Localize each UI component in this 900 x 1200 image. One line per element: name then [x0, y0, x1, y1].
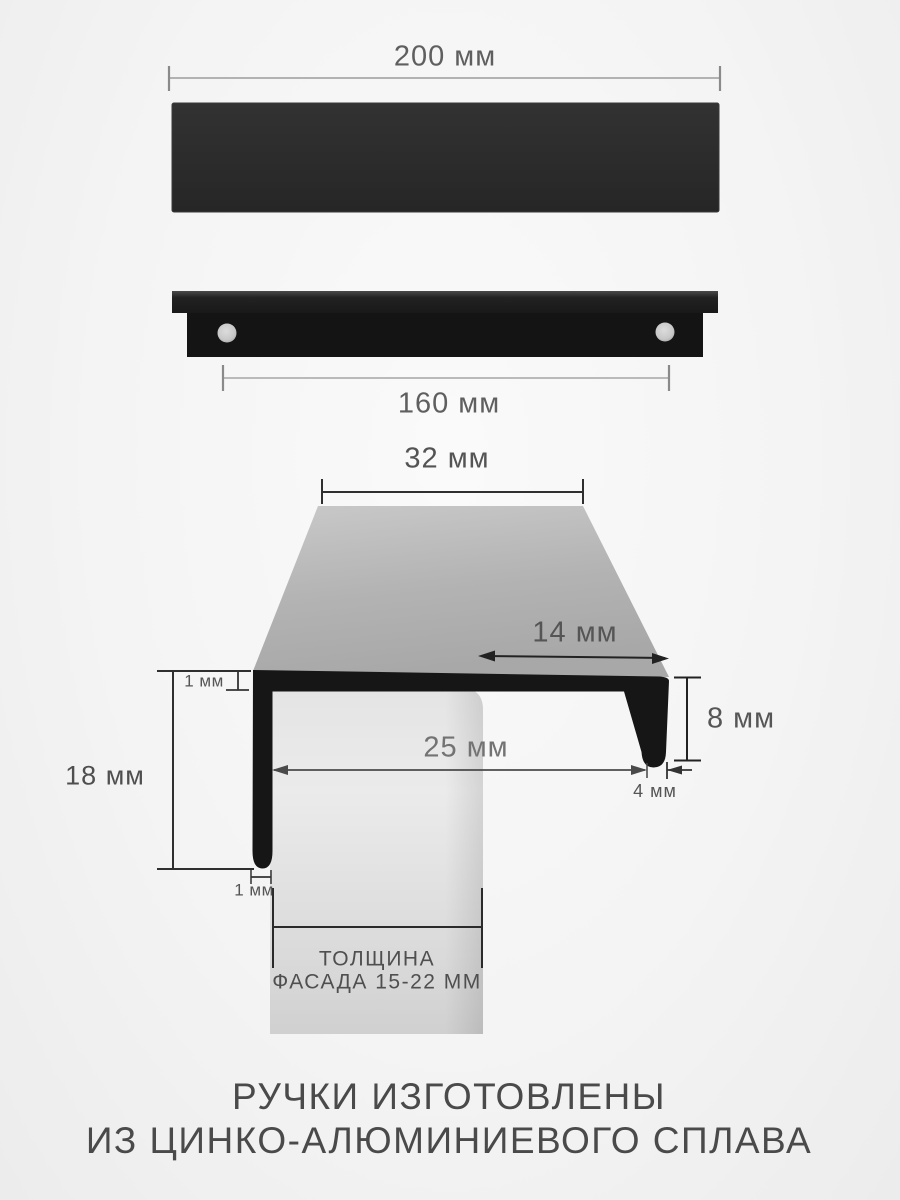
front-view-lip [172, 291, 718, 313]
caption-line2: ИЗ ЦИНКО-АЛЮМИНИЕВОГО СПЛАВА [86, 1120, 812, 1162]
dim-label-200mm: 200 мм [394, 43, 496, 72]
section-top-face [253, 506, 669, 677]
dim-label-1mm-bottom: 1 мм [234, 882, 274, 899]
top-view-handle-bar [172, 103, 719, 212]
dim-label-8mm: 8 мм [707, 705, 775, 734]
dim-label-160mm: 160 мм [398, 390, 500, 419]
dim-label-1mm-top: 1 мм [184, 673, 224, 690]
product-dimension-diagram: 200 мм 160 мм 32 мм 14 мм 8 мм 25 мм 4 м… [0, 0, 900, 1200]
dim-label-25mm: 25 мм [423, 734, 508, 763]
dim-label-4mm: 4 мм [633, 782, 677, 800]
front-view-body [187, 313, 703, 357]
dim-18 [157, 671, 254, 869]
dim-label-14mm: 14 мм [532, 619, 617, 648]
facade-caption-line2: ФАСАДА 15-22 ММ [272, 972, 482, 993]
dim-label-18mm: 18 мм [65, 763, 145, 790]
dim-32 [322, 479, 583, 504]
dim-label-32mm: 32 мм [404, 445, 489, 474]
diagram-canvas [0, 0, 900, 1200]
dim-8 [674, 678, 701, 761]
screw-hole-right [656, 323, 675, 342]
facade-caption-line1: ТОЛЩИНА [319, 949, 435, 970]
screw-hole-left [218, 324, 237, 343]
caption-line1: РУЧКИ ИЗГОТОВЛЕНЫ [232, 1076, 666, 1118]
dim-1-top [226, 671, 249, 690]
